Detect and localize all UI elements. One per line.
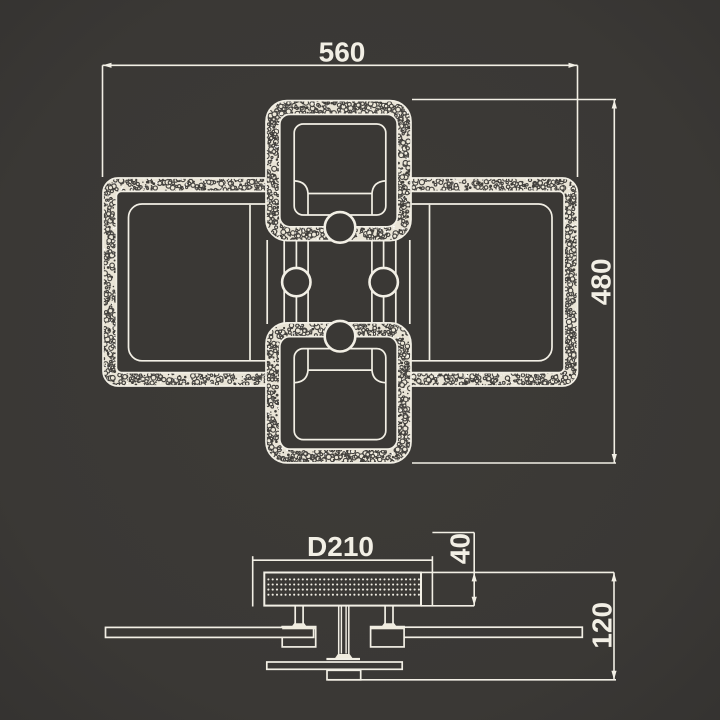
svg-text:480: 480 xyxy=(586,258,617,305)
svg-text:560: 560 xyxy=(319,37,366,68)
svg-text:40: 40 xyxy=(445,533,476,564)
svg-text:120: 120 xyxy=(587,602,618,649)
svg-text:D210: D210 xyxy=(307,531,374,562)
